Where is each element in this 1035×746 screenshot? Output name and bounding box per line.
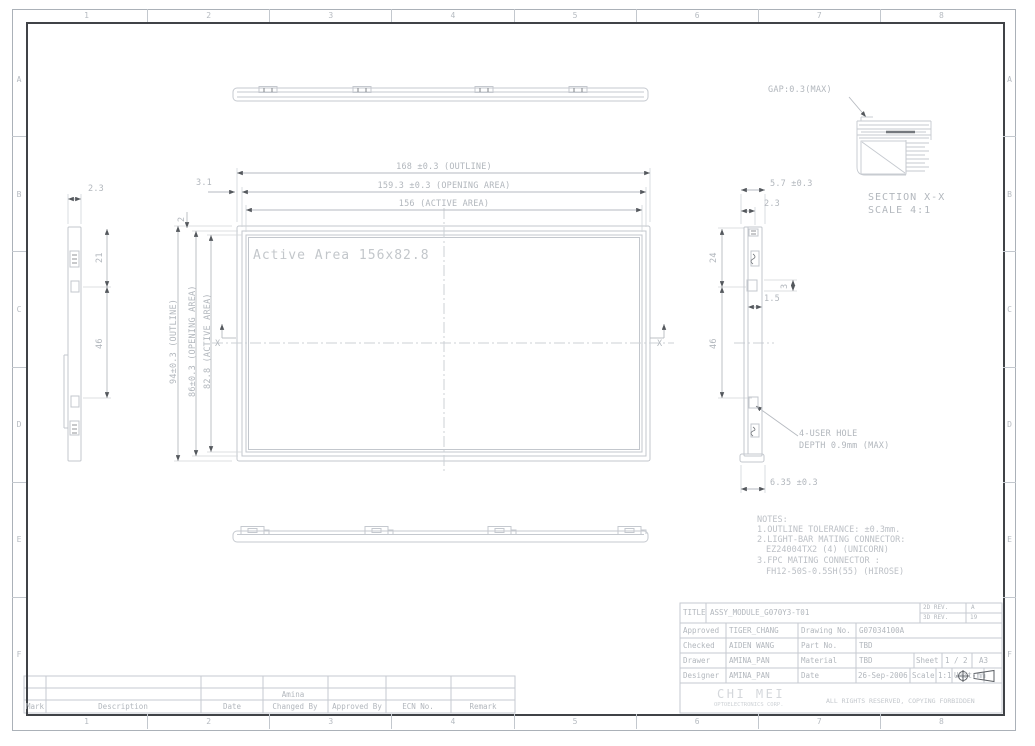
dim-left-thickness: 2.3 — [88, 185, 104, 194]
zone-col: 2 — [206, 11, 211, 20]
dim-left-top: 21 — [96, 252, 105, 263]
dim-opening-height: 86±0.3 (OPENING AREA) — [189, 285, 198, 397]
rev-col-ecn-no: ECN No. — [402, 703, 434, 711]
drawing-sheet: 1 2 3 4 5 6 7 8 1 2 3 4 5 6 7 8 A B C D … — [0, 0, 1035, 746]
sheet-label: Sheet — [916, 657, 939, 665]
dim-offset-h: 3.1 — [196, 179, 212, 188]
approved-label: Approved — [683, 627, 719, 635]
zone-col: 5 — [573, 11, 578, 20]
title-label: TITLE — [683, 609, 706, 617]
unit-value: Unit:mm — [954, 672, 986, 680]
dim-right-thickness-total: 5.7 ±0.3 — [770, 180, 813, 189]
zone-col: 1 — [84, 11, 89, 20]
user-hole-callout-line2: DEPTH 0.9mm (MAX) — [799, 442, 889, 451]
date-value: 26-Sep-2006 — [858, 672, 908, 680]
company-name: CHI MEI — [717, 688, 785, 700]
note-line: 2.LIGHT-BAR MATING CONNECTOR: — [757, 536, 905, 545]
zone-row: A — [17, 75, 22, 84]
zone-row: C — [17, 305, 22, 314]
dim-right-thickness: 2.3 — [764, 200, 780, 209]
rev-entry-changed-by: Amina — [282, 691, 305, 699]
designer-label: Designer — [683, 672, 719, 680]
zone-row: E — [1007, 535, 1012, 544]
note-line: 1.OUTLINE TOLERANCE: ±0.3mm. — [757, 526, 900, 535]
gap-label: GAP:0.3(MAX) — [768, 86, 832, 95]
part-no-label: Part No. — [801, 642, 837, 650]
zone-row: B — [17, 190, 22, 199]
dim-left-middle: 46 — [96, 338, 105, 349]
zone-row: D — [1007, 420, 1012, 429]
zone-col: 3 — [328, 11, 333, 20]
dim-right-bottom: 6.35 ±0.3 — [770, 479, 818, 488]
dim-offset-v: 2 — [178, 217, 187, 222]
dim-active-width: 156 (ACTIVE AREA) — [399, 200, 489, 209]
zone-col: 5 — [573, 717, 578, 726]
zone-ruler-top: 1 2 3 4 5 6 7 8 — [26, 9, 1002, 22]
rev-col-remark: Remark — [469, 703, 496, 711]
zone-col: 7 — [817, 11, 822, 20]
approved-value: TIGER_CHANG — [729, 627, 779, 635]
drawing-no-label: Drawing No. — [801, 627, 851, 635]
zone-ruler-left: A B C D E F — [12, 22, 26, 712]
zone-col: 8 — [939, 11, 944, 20]
section-mark-left: X — [215, 340, 220, 349]
rev2d-label: 2D REV. — [923, 605, 948, 611]
date-label: Date — [801, 672, 819, 680]
company-sub: OPTOELECTRONICS CORP. — [714, 703, 784, 709]
zone-row: A — [1007, 75, 1012, 84]
paper-size: A3 — [979, 657, 988, 665]
zone-col: 2 — [206, 717, 211, 726]
zone-row: F — [1007, 650, 1012, 659]
rev-col-changed-by: Changed By — [272, 703, 317, 711]
active-area-label: Active Area 156x82.8 — [253, 249, 430, 262]
dim-right-middle: 46 — [710, 338, 719, 349]
rev2d-value: A — [971, 605, 975, 611]
zone-col: 6 — [695, 11, 700, 20]
dim-right-hole-offset: 1.5 — [764, 295, 780, 304]
rev-col-approved-by: Approved By — [332, 703, 382, 711]
note-line: EZ24004TX2 (4) (UNICORN) — [766, 546, 889, 555]
drawer-value: AMINA_PAN — [729, 657, 770, 665]
zone-col: 7 — [817, 717, 822, 726]
rev3d-value: 19 — [970, 615, 977, 621]
section-mark-right: X — [657, 340, 662, 349]
rev-col-mark: Mark — [26, 703, 44, 711]
zone-col: 3 — [328, 717, 333, 726]
drawing-no-value: G07034100A — [859, 627, 904, 635]
zone-row: B — [1007, 190, 1012, 199]
zone-ruler-bottom: 1 2 3 4 5 6 7 8 — [26, 714, 1002, 729]
rev3d-label: 3D REV. — [923, 615, 948, 621]
rights-notice: ALL RIGHTS RESERVED, COPYING FORBIDDEN — [826, 698, 975, 705]
sheet-value: 1 / 2 — [945, 657, 968, 665]
zone-ruler-right: A B C D E F — [1003, 22, 1016, 712]
dim-opening-width: 159.3 ±0.3 (OPENING AREA) — [378, 182, 511, 191]
checked-value: AIDEN WANG — [729, 642, 774, 650]
zone-row: D — [17, 420, 22, 429]
zone-col: 1 — [84, 717, 89, 726]
zone-row: C — [1007, 305, 1012, 314]
designer-value: AMINA_PAN — [729, 672, 770, 680]
part-no-value: TBD — [859, 642, 873, 650]
drawer-label: Drawer — [683, 657, 710, 665]
zone-row: E — [17, 535, 22, 544]
dim-outline-width: 168 ±0.3 (OUTLINE) — [396, 163, 492, 172]
zone-col: 8 — [939, 717, 944, 726]
zone-col: 6 — [695, 717, 700, 726]
rev-col-description: Description — [98, 703, 148, 711]
dim-outline-height: 94±0.3 (OUTLINE) — [170, 299, 179, 384]
checked-label: Checked — [683, 642, 715, 650]
dim-active-height: 82.8 (ACTIVE AREA) — [204, 293, 213, 389]
note-line: 3.FPC MATING CONNECTOR : — [757, 557, 880, 566]
zone-col: 4 — [451, 717, 456, 726]
dim-right-top: 24 — [710, 252, 719, 263]
note-line: FH12-50S-0.5SH(55) (HIROSE) — [766, 568, 904, 577]
dim-right-hole-size: 3 — [781, 284, 790, 289]
user-hole-callout-line1: 4-USER HOLE — [799, 430, 858, 439]
rev-col-date: Date — [223, 703, 241, 711]
notes-heading: NOTES: — [757, 516, 788, 525]
material-label: Material — [801, 657, 837, 665]
zone-col: 4 — [451, 11, 456, 20]
title-value: ASSY_MODULE_G070Y3-T01 — [710, 609, 809, 617]
scale-label: Scale — [912, 672, 935, 680]
material-value: TBD — [859, 657, 873, 665]
scale-value: 1:1 — [938, 672, 952, 680]
zone-row: F — [17, 650, 22, 659]
section-title: SECTION X-X — [868, 193, 945, 203]
section-scale: SCALE 4:1 — [868, 206, 931, 216]
